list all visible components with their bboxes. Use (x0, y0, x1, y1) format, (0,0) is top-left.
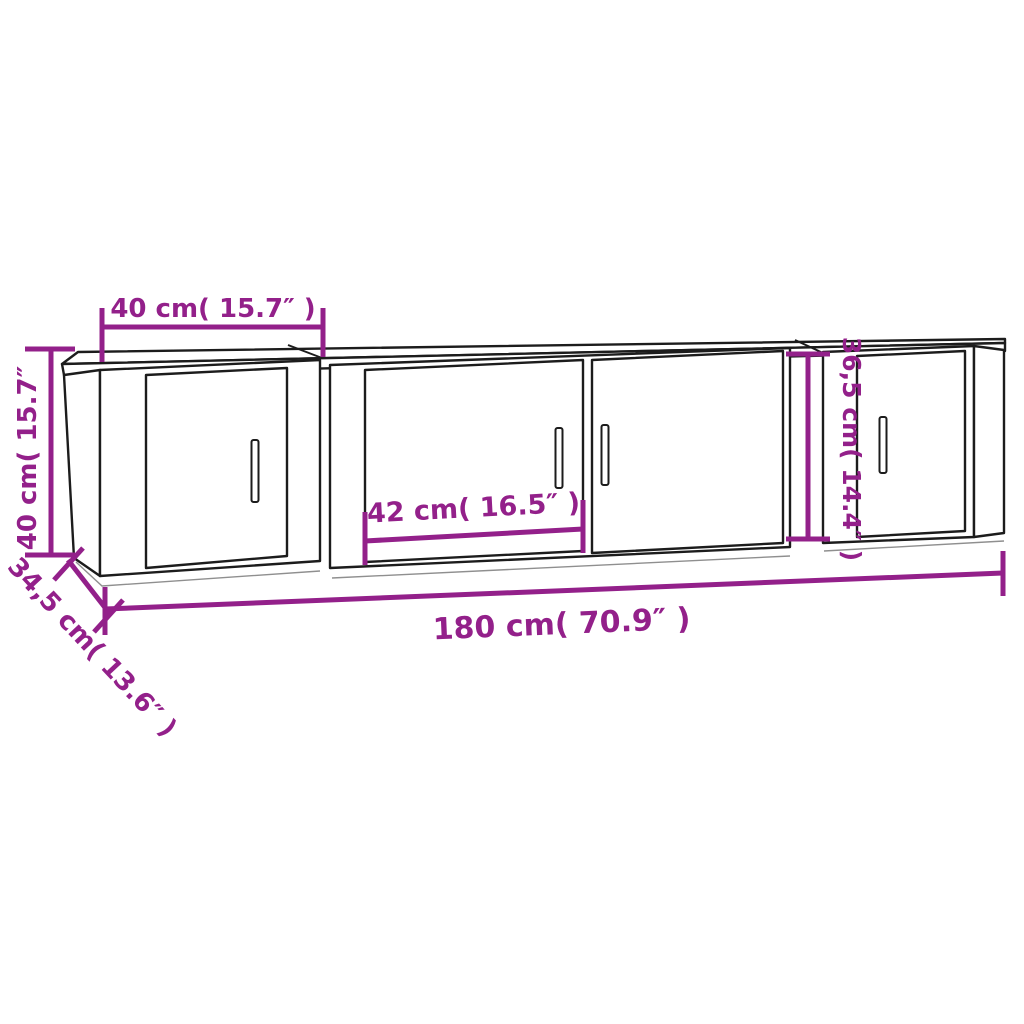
left-cabinet-door (146, 368, 287, 568)
label-total-width: 180 cm( 70.9″ ) (432, 602, 691, 648)
right-cabinet-door (857, 351, 965, 537)
label-top-width: 40 cm( 15.7″ ) (110, 294, 315, 324)
label-left-height: 40 cm( 15.7″ (13, 366, 43, 550)
right-cabinet-door-handle (880, 417, 887, 473)
left-cabinet-side-face (64, 370, 100, 576)
center-right-door-handle (602, 425, 609, 485)
left-cabinet (64, 360, 320, 586)
label-right-height: 36,5 cm( 14.4″ ) (837, 337, 866, 561)
center-left-door-handle (556, 428, 563, 488)
label-depth: 34,5 cm( 13.6″ ) (1, 552, 182, 743)
left-cabinet-door-handle (252, 440, 259, 502)
center-cabinet (330, 348, 790, 578)
furniture-dimension-diagram: 40 cm( 15.7″ ) 40 cm( 15.7″ 34,5 cm( 13.… (0, 0, 1024, 1024)
center-cabinet-door-right (592, 351, 783, 553)
diagram-canvas: 40 cm( 15.7″ ) 40 cm( 15.7″ 34,5 cm( 13.… (0, 0, 1024, 1024)
right-cabinet-side-face (974, 346, 1004, 537)
